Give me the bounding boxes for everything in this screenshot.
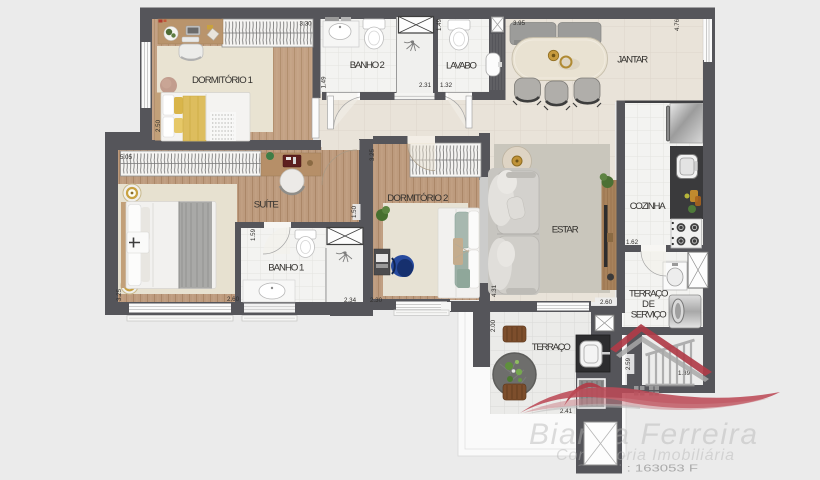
svg-text:3.25: 3.25 xyxy=(369,148,376,161)
svg-text:4.76: 4.76 xyxy=(674,18,681,31)
svg-text:3.95: 3.95 xyxy=(513,20,526,27)
svg-text:2.30: 2.30 xyxy=(370,297,383,304)
svg-text:JANTAR: JANTAR xyxy=(617,54,648,65)
svg-text:1.32: 1.32 xyxy=(440,82,453,89)
svg-text:BANHO 2: BANHO 2 xyxy=(350,60,385,71)
svg-text:ESTAR: ESTAR xyxy=(552,225,579,236)
svg-text:4.31: 4.31 xyxy=(491,284,498,297)
svg-text:COZINHA: COZINHA xyxy=(630,201,667,212)
svg-text:2.34: 2.34 xyxy=(344,297,357,304)
svg-text:TERRAÇO: TERRAÇO xyxy=(629,289,669,300)
svg-text:2.60: 2.60 xyxy=(600,299,613,306)
svg-text:LAVABO: LAVABO xyxy=(446,61,477,72)
svg-text:1.59: 1.59 xyxy=(250,228,257,241)
svg-text:SERVIÇO: SERVIÇO xyxy=(631,309,667,320)
svg-text:2.31: 2.31 xyxy=(419,82,432,89)
svg-text:1.49: 1.49 xyxy=(436,18,443,31)
svg-text:3.30: 3.30 xyxy=(299,20,312,27)
svg-text:2.00: 2.00 xyxy=(490,319,497,332)
svg-text:DORMITÓRIO 2: DORMITÓRIO 2 xyxy=(387,193,448,204)
svg-text:1.62: 1.62 xyxy=(626,239,639,246)
svg-text:2.59: 2.59 xyxy=(625,357,632,370)
svg-text:Consultoria Imobiliária: Consultoria Imobiliária xyxy=(556,447,734,464)
svg-text:2.60: 2.60 xyxy=(227,296,240,303)
svg-text:TERRAÇO: TERRAÇO xyxy=(532,342,571,353)
svg-text:2.50: 2.50 xyxy=(155,119,162,132)
svg-text:5.05: 5.05 xyxy=(120,154,133,161)
svg-text:1.50: 1.50 xyxy=(351,205,358,218)
svg-text:DORMITÓRIO 1: DORMITÓRIO 1 xyxy=(192,75,253,86)
svg-text:1.49: 1.49 xyxy=(321,76,328,89)
svg-text:3.25: 3.25 xyxy=(116,288,123,301)
svg-text:SUÍTE: SUÍTE xyxy=(254,200,279,211)
svg-text:BANHO 1: BANHO 1 xyxy=(268,263,304,274)
